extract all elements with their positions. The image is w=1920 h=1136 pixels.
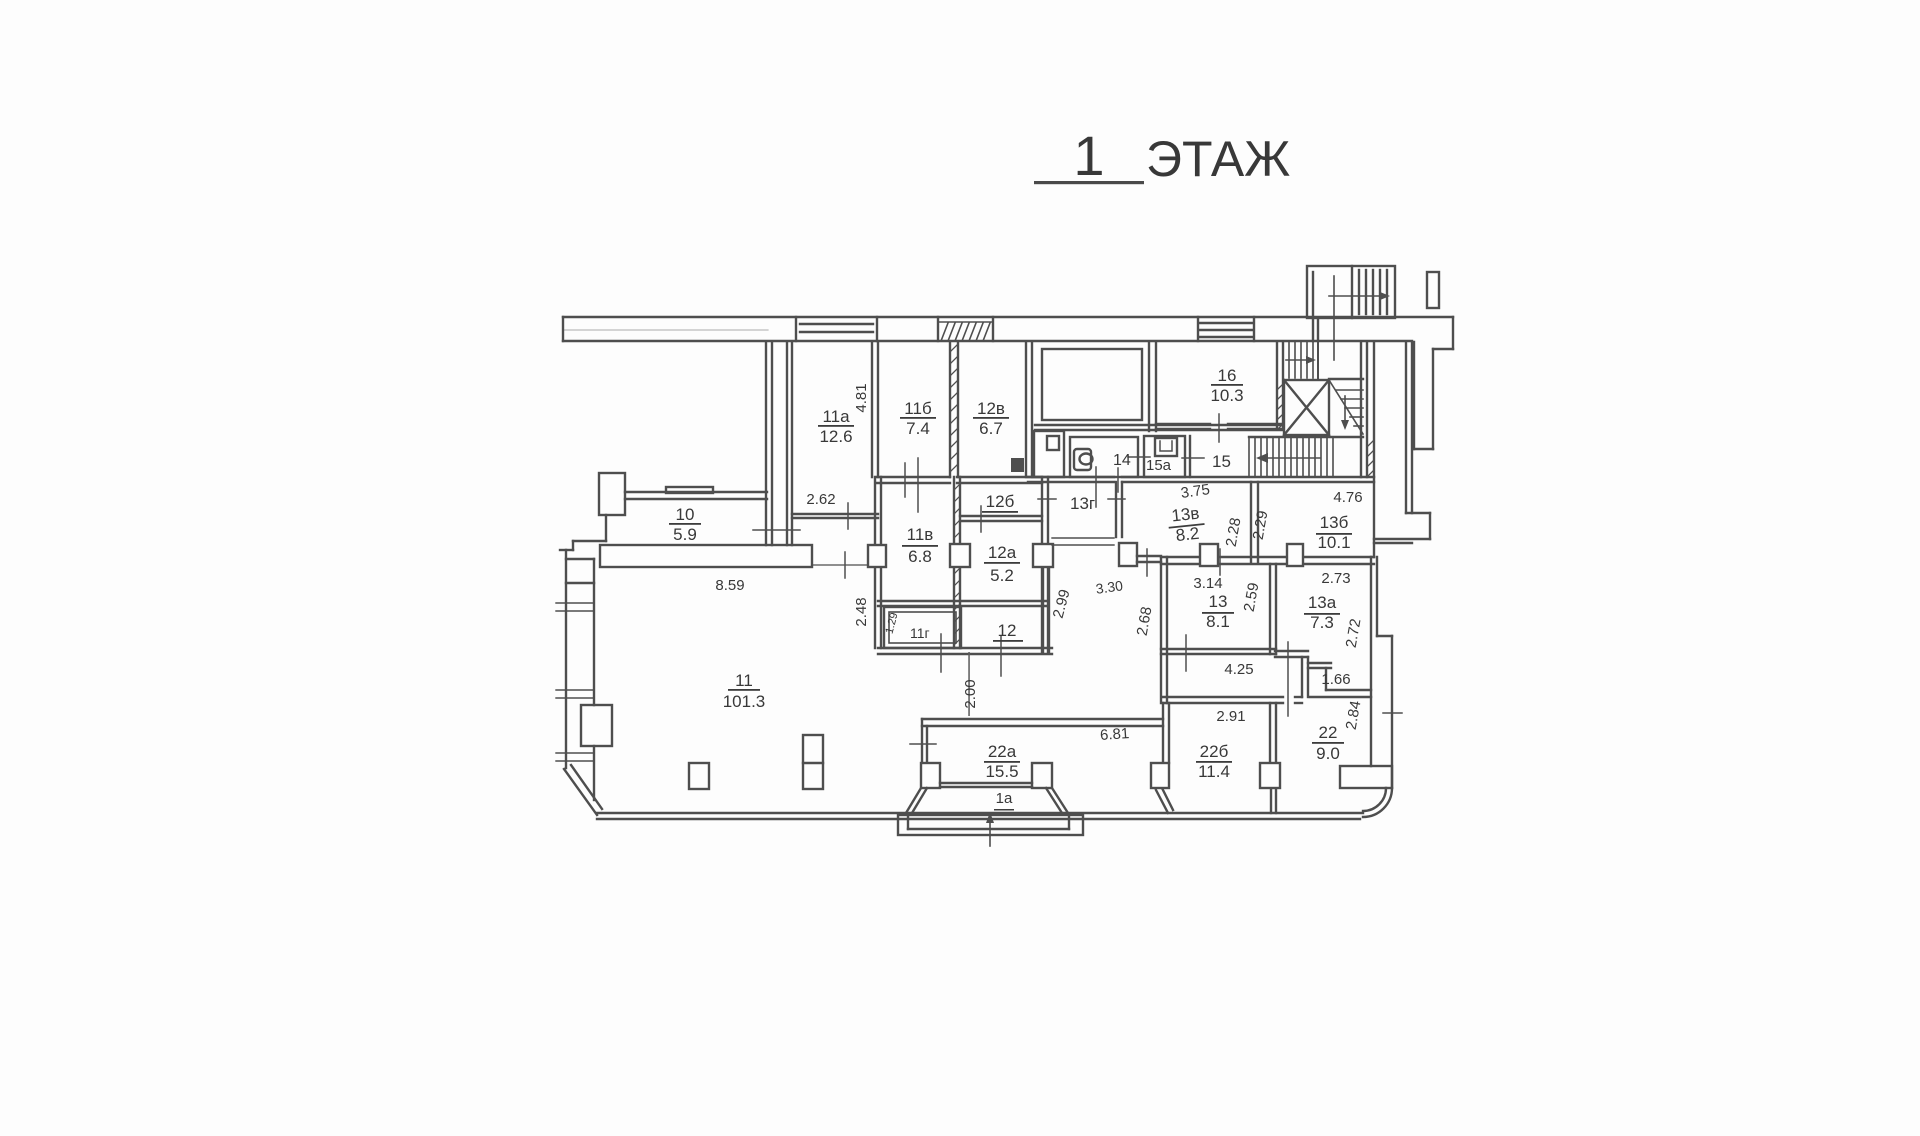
svg-text:13г: 13г — [1070, 494, 1095, 513]
svg-text:13: 13 — [1209, 592, 1228, 611]
svg-text:15.5: 15.5 — [985, 762, 1018, 781]
svg-text:2.91: 2.91 — [1216, 708, 1245, 725]
svg-text:8.2: 8.2 — [1175, 524, 1200, 545]
svg-text:11а: 11а — [822, 407, 850, 426]
svg-text:22: 22 — [1319, 723, 1338, 742]
svg-text:6.81: 6.81 — [1100, 725, 1130, 744]
svg-text:13б: 13б — [1320, 513, 1349, 532]
svg-text:12а: 12а — [988, 543, 1017, 562]
svg-text:1а: 1а — [996, 790, 1013, 807]
svg-text:2.29: 2.29 — [1250, 509, 1272, 541]
svg-text:12.6: 12.6 — [819, 427, 852, 446]
svg-text:2.00: 2.00 — [962, 679, 979, 708]
svg-text:1.66: 1.66 — [1321, 671, 1350, 688]
svg-text:3.75: 3.75 — [1180, 481, 1211, 502]
svg-text:15а: 15а — [1146, 457, 1172, 474]
svg-text:5.2: 5.2 — [990, 566, 1014, 585]
svg-text:9.0: 9.0 — [1316, 744, 1340, 763]
svg-text:16: 16 — [1218, 366, 1237, 385]
svg-text:2.73: 2.73 — [1321, 570, 1350, 587]
svg-text:11г: 11г — [910, 625, 930, 641]
svg-text:10.1: 10.1 — [1317, 533, 1350, 552]
svg-text:11: 11 — [735, 671, 753, 690]
svg-text:10.3: 10.3 — [1210, 386, 1243, 405]
svg-text:22а: 22а — [988, 742, 1017, 761]
svg-text:3.14: 3.14 — [1193, 575, 1222, 592]
svg-text:12б: 12б — [986, 492, 1015, 511]
svg-text:ЭТАЖ: ЭТАЖ — [1146, 131, 1290, 187]
svg-text:6.8: 6.8 — [908, 547, 932, 566]
svg-text:4.76: 4.76 — [1333, 489, 1362, 506]
svg-text:8.1: 8.1 — [1206, 612, 1230, 631]
svg-text:5.9: 5.9 — [673, 525, 697, 544]
svg-text:4.81: 4.81 — [853, 383, 870, 412]
svg-text:1: 1 — [1073, 124, 1104, 187]
svg-text:4.25: 4.25 — [1224, 661, 1253, 678]
svg-text:12в: 12в — [977, 399, 1005, 418]
svg-text:2.59: 2.59 — [1241, 581, 1263, 613]
svg-text:13а: 13а — [1308, 593, 1337, 612]
svg-text:11.4: 11.4 — [1198, 762, 1230, 781]
svg-text:2.84: 2.84 — [1343, 699, 1365, 731]
svg-text:8.59: 8.59 — [715, 577, 744, 594]
svg-text:12: 12 — [998, 621, 1017, 640]
svg-text:15: 15 — [1212, 452, 1231, 471]
svg-text:2.72: 2.72 — [1343, 617, 1365, 649]
svg-text:7.4: 7.4 — [906, 419, 930, 438]
svg-text:2.68: 2.68 — [1134, 605, 1156, 637]
svg-text:11в: 11в — [907, 525, 934, 544]
svg-text:2.28: 2.28 — [1223, 516, 1245, 548]
svg-text:6.7: 6.7 — [979, 419, 1003, 438]
svg-text:10: 10 — [676, 505, 695, 524]
svg-text:22б: 22б — [1200, 742, 1229, 761]
svg-text:2.48: 2.48 — [853, 597, 870, 626]
svg-text:11б: 11б — [904, 399, 932, 418]
svg-text:2.99: 2.99 — [1050, 588, 1074, 621]
svg-text:14: 14 — [1113, 452, 1131, 469]
svg-text:13в: 13в — [1171, 504, 1201, 526]
svg-text:3.30: 3.30 — [1095, 577, 1124, 597]
svg-text:1.29: 1.29 — [884, 611, 901, 635]
svg-text:101.3: 101.3 — [723, 692, 766, 711]
svg-text:2.62: 2.62 — [806, 491, 835, 508]
svg-text:7.3: 7.3 — [1310, 613, 1334, 632]
